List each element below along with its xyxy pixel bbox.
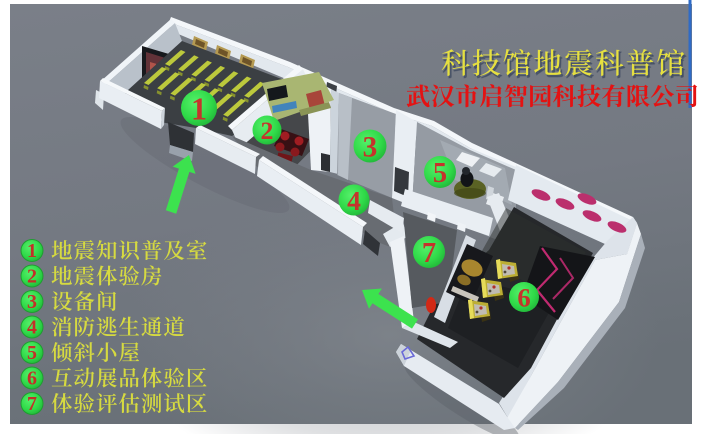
svg-text:2: 2 bbox=[27, 266, 37, 288]
svg-text:1: 1 bbox=[191, 90, 207, 126]
svg-text:2: 2 bbox=[261, 116, 274, 145]
svg-text:4: 4 bbox=[347, 185, 361, 216]
svg-text:3: 3 bbox=[27, 291, 37, 313]
svg-text:4: 4 bbox=[27, 317, 37, 339]
svg-text:5: 5 bbox=[27, 342, 37, 364]
svg-text:7: 7 bbox=[422, 238, 436, 269]
svg-text:5: 5 bbox=[433, 158, 447, 189]
svg-text:7: 7 bbox=[27, 393, 37, 415]
svg-text:6: 6 bbox=[27, 368, 37, 390]
svg-text:6: 6 bbox=[517, 282, 530, 312]
svg-text:1: 1 bbox=[27, 240, 37, 262]
svg-text:3: 3 bbox=[363, 131, 378, 163]
